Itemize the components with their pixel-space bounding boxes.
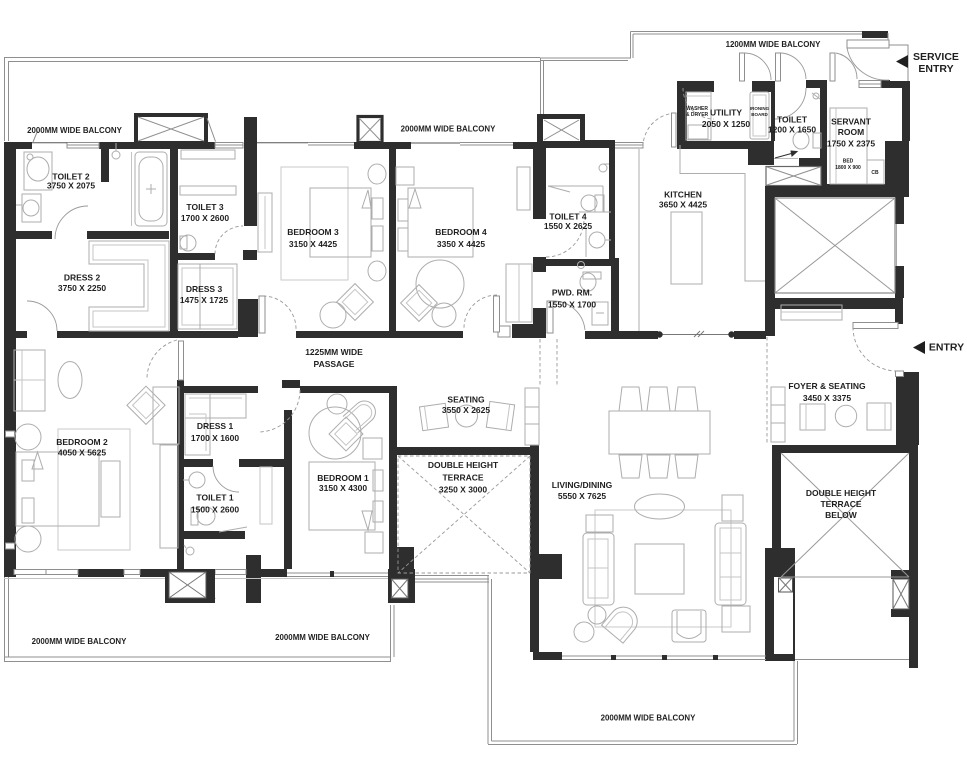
svg-text:TOILET 4: TOILET 4 — [549, 212, 586, 222]
svg-text:TOILET 1: TOILET 1 — [196, 493, 233, 503]
svg-text:BELOW: BELOW — [825, 510, 858, 520]
svg-text:BEDROOM 4: BEDROOM 4 — [435, 227, 487, 237]
svg-text:BOARD: BOARD — [751, 112, 768, 117]
svg-text:3750 X 2250: 3750 X 2250 — [58, 283, 106, 293]
svg-text:BED: BED — [843, 159, 854, 165]
svg-text:3350 X 4425: 3350 X 4425 — [437, 239, 485, 249]
svg-text:3550 X 2625: 3550 X 2625 — [442, 405, 490, 415]
svg-text:2050 X 1250: 2050 X 1250 — [702, 119, 750, 129]
svg-text:ENTRY: ENTRY — [918, 63, 953, 75]
svg-text:1800 X 900: 1800 X 900 — [835, 165, 861, 171]
svg-text:DRESS 2: DRESS 2 — [64, 273, 101, 283]
svg-text:BEDROOM 2: BEDROOM 2 — [56, 437, 108, 447]
svg-text:1700 X 2600: 1700 X 2600 — [181, 213, 229, 223]
svg-text:2000MM WIDE BALCONY: 2000MM WIDE BALCONY — [27, 126, 122, 135]
svg-text:4050 X 5625: 4050 X 5625 — [58, 448, 106, 458]
svg-text:3250 X 3000: 3250 X 3000 — [439, 485, 487, 495]
svg-text:TERRACE: TERRACE — [820, 499, 861, 509]
svg-text:& DRYER: & DRYER — [686, 112, 709, 118]
svg-text:SERVANT: SERVANT — [831, 117, 872, 127]
svg-text:TERRACE: TERRACE — [442, 473, 483, 483]
svg-text:ROOM: ROOM — [838, 127, 864, 137]
svg-text:SERVICE: SERVICE — [913, 51, 959, 63]
svg-text:1700 X 1600: 1700 X 1600 — [191, 433, 239, 443]
svg-text:TOILET: TOILET — [777, 115, 808, 125]
svg-text:1500 X 2600: 1500 X 2600 — [191, 505, 239, 515]
svg-text:3150 X 4425: 3150 X 4425 — [289, 239, 337, 249]
svg-text:1225MM WIDE: 1225MM WIDE — [305, 347, 363, 357]
svg-text:2000MM WIDE BALCONY: 2000MM WIDE BALCONY — [601, 714, 696, 723]
svg-text:1550 X 2625: 1550 X 2625 — [544, 221, 592, 231]
svg-text:2000MM WIDE BALCONY: 2000MM WIDE BALCONY — [401, 125, 496, 134]
svg-text:1200 X 1650: 1200 X 1650 — [768, 125, 816, 135]
svg-text:UTILITY: UTILITY — [710, 108, 742, 118]
svg-text:BEDROOM 3: BEDROOM 3 — [287, 227, 339, 237]
svg-text:3150 X 4300: 3150 X 4300 — [319, 483, 367, 493]
svg-text:KITCHEN: KITCHEN — [664, 190, 702, 200]
svg-text:PASSAGE: PASSAGE — [314, 359, 355, 369]
svg-text:IRONING: IRONING — [750, 106, 770, 111]
svg-text:DOUBLE HEIGHT: DOUBLE HEIGHT — [806, 488, 877, 498]
svg-text:LIVING/DINING: LIVING/DINING — [552, 480, 613, 490]
svg-text:1550 X 1700: 1550 X 1700 — [548, 300, 596, 310]
svg-text:CB: CB — [871, 170, 879, 176]
svg-text:3450 X 3375: 3450 X 3375 — [803, 393, 851, 403]
svg-text:ENTRY: ENTRY — [929, 342, 964, 354]
svg-text:BEDROOM 1: BEDROOM 1 — [317, 473, 369, 483]
svg-text:DRESS 3: DRESS 3 — [186, 284, 223, 294]
svg-text:1750 X 2375: 1750 X 2375 — [827, 139, 875, 149]
svg-text:5550 X 7625: 5550 X 7625 — [558, 491, 606, 501]
svg-text:2000MM WIDE BALCONY: 2000MM WIDE BALCONY — [32, 637, 127, 646]
svg-text:1200MM WIDE BALCONY: 1200MM WIDE BALCONY — [726, 40, 821, 49]
svg-text:FOYER & SEATING: FOYER & SEATING — [788, 381, 866, 391]
svg-text:TOILET 3: TOILET 3 — [186, 202, 223, 212]
svg-text:3650 X 4425: 3650 X 4425 — [659, 200, 707, 210]
svg-text:PWD. RM.: PWD. RM. — [552, 288, 592, 298]
svg-text:SEATING: SEATING — [447, 395, 485, 405]
svg-text:DRESS 1: DRESS 1 — [197, 421, 234, 431]
svg-text:3750 X 2075: 3750 X 2075 — [47, 181, 95, 191]
svg-text:1475 X 1725: 1475 X 1725 — [180, 295, 228, 305]
svg-text:2000MM WIDE BALCONY: 2000MM WIDE BALCONY — [275, 633, 370, 642]
svg-text:DOUBLE HEIGHT: DOUBLE HEIGHT — [428, 460, 499, 470]
